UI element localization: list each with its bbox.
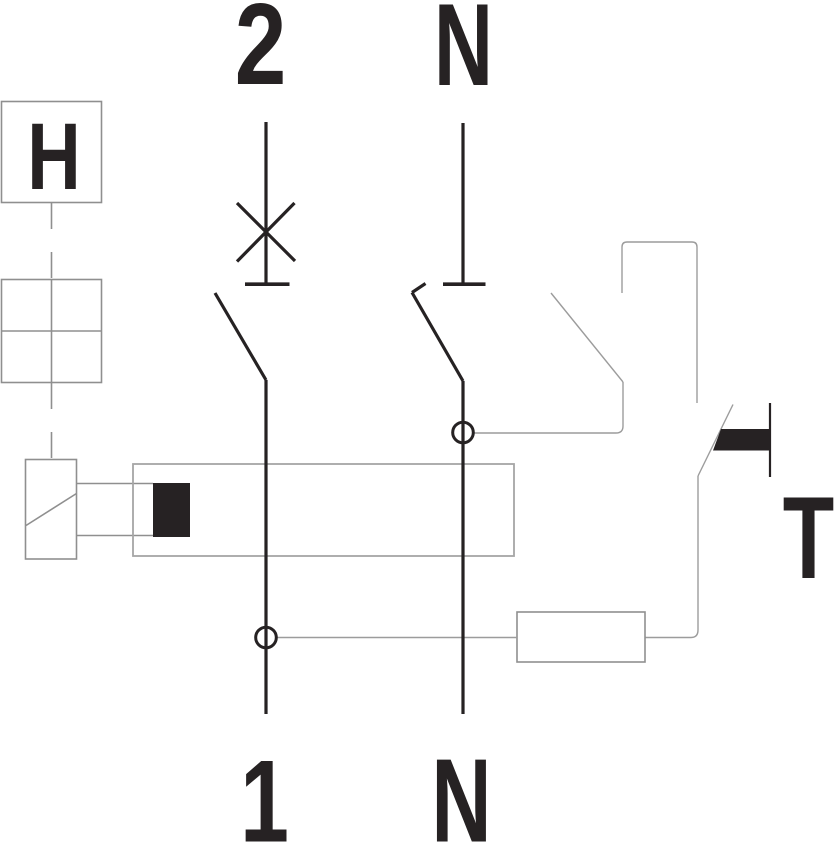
- terminal-n-top-label: N: [434, 0, 493, 110]
- test-auxiliary-switch-blade: [551, 293, 623, 382]
- test-resistor-box: [517, 612, 645, 662]
- current-transformer-toroid: [133, 464, 514, 556]
- schematic-canvas: 2 N 1 N H T: [0, 0, 834, 842]
- terminal-2-label: 2: [235, 0, 287, 109]
- indicator-h-label: H: [27, 104, 81, 210]
- mechanism-grid-box: [2, 280, 102, 383]
- test-circuit-wire-to-resistor: [645, 476, 698, 638]
- test-button-t-label: T: [783, 472, 834, 603]
- rcd-circuit-diagram: 2 N 1 N H T: [0, 0, 834, 842]
- terminal-n-bottom-label: N: [431, 734, 491, 842]
- pole-2-switch-blade: [215, 293, 266, 380]
- neutral-blade-barb: [412, 284, 426, 293]
- test-circuit-wire-to-neutral-node: [474, 382, 624, 433]
- test-circuit-fixed-contact-run: [622, 242, 697, 403]
- trip-relay-diagonal: [26, 494, 77, 526]
- trip-relay-box: [26, 460, 77, 560]
- terminal-1-label: 1: [240, 735, 289, 842]
- sensing-coil-block-icon: [153, 483, 190, 537]
- neutral-switch-blade: [412, 293, 463, 382]
- test-button-actuator-icon: [713, 429, 771, 451]
